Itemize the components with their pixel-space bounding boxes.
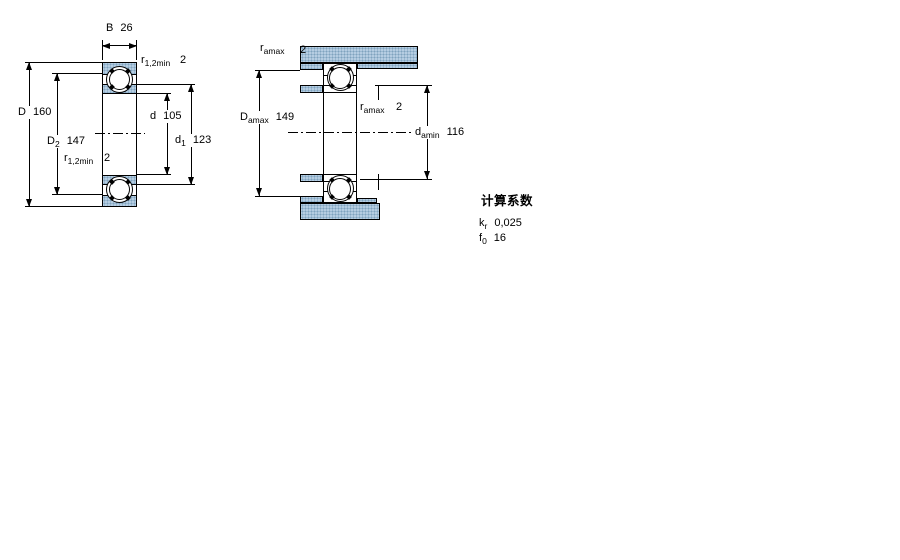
ext-line-d1-bottom: [137, 184, 195, 185]
label-width-B: B26: [106, 22, 133, 35]
dim-line-D: [29, 62, 30, 207]
label-recess-diameter: D2147: [45, 135, 87, 148]
ext-line-fillet-mid-upper: [378, 85, 379, 100]
label-radius-top: r1,2min: [141, 54, 170, 67]
ext-line-D-top: [25, 62, 102, 63]
arrowhead: [424, 85, 430, 93]
arrowhead: [188, 177, 194, 185]
ext-line-D-bottom: [25, 206, 102, 207]
arrowhead: [26, 199, 32, 207]
label-radius-bottom-value: 2: [104, 152, 110, 165]
label-bore-diameter: d105: [148, 110, 183, 123]
arrowhead: [26, 62, 32, 70]
label-fillet-mid-value: 2: [396, 101, 402, 114]
arrowhead: [256, 70, 262, 78]
ext-line-fillet-mid-lower: [378, 174, 379, 190]
arrowhead: [188, 84, 194, 92]
arrowhead: [54, 187, 60, 195]
ext-line-Damax-bottom: [255, 196, 300, 197]
label-shoulder-diameter: d1123: [173, 134, 213, 147]
shaft-shoulder-top-section: [300, 85, 323, 93]
label-fillet-top: ramax: [260, 42, 284, 55]
ext-line-d1-top: [137, 84, 195, 85]
housing-top-section: [300, 46, 418, 63]
housing-shoulder-bottom-right: [357, 198, 377, 204]
label-shaft-shoulder: damin116: [413, 126, 466, 139]
arrowhead: [424, 171, 430, 179]
bearing-dimension-drawing: B26 r1,2min 2 D160 D2147 r1,2min 2 d105 …: [0, 0, 900, 560]
arrowhead: [164, 167, 170, 175]
factor-kr: kr0,025: [479, 217, 522, 230]
shaft-shoulder-bottom-section: [300, 174, 323, 182]
dim-line-Damax: [259, 70, 260, 196]
arrowhead: [164, 93, 170, 101]
ext-line-damin-bottom: [360, 179, 432, 180]
arrowhead: [54, 73, 60, 81]
dim-line-D2: [57, 73, 58, 195]
calculation-factors-heading: 计算系数: [481, 195, 533, 208]
centerline: [95, 133, 145, 134]
housing-bottom-section: [300, 203, 380, 220]
arrowhead: [256, 188, 262, 196]
arrowhead: [129, 43, 137, 49]
housing-shoulder-bottom-left: [300, 196, 323, 203]
label-radius-top-value: 2: [180, 54, 186, 67]
centerline: [288, 132, 412, 133]
housing-shoulder-top-left: [300, 63, 323, 70]
label-fillet-top-value: 2: [300, 44, 306, 57]
label-fillet-mid: ramax: [360, 101, 384, 114]
label-outer-diameter: D160: [16, 106, 53, 119]
housing-shoulder-top-right: [357, 63, 418, 69]
dim-line-d: [167, 93, 168, 175]
label-housing-shoulder: Damax149: [238, 111, 296, 124]
label-radius-bottom: r1,2min: [64, 152, 93, 165]
arrowhead: [102, 43, 110, 49]
factor-f0: f016: [479, 232, 506, 245]
